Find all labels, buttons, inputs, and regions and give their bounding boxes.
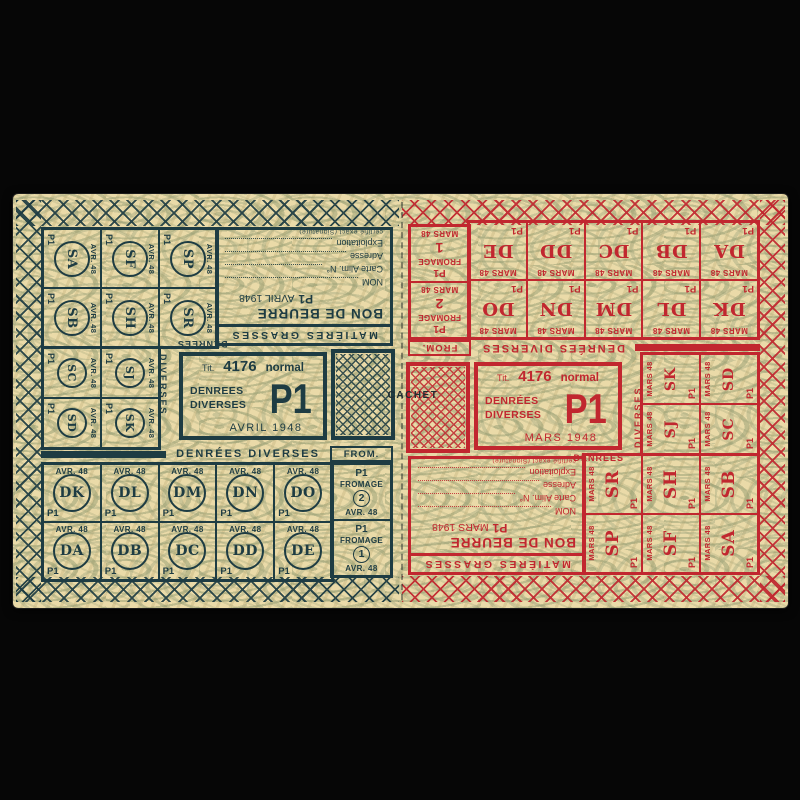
p1-label: P1 (687, 438, 697, 449)
tit-label: Tit. (202, 363, 214, 373)
titre-number: 4176 (223, 358, 256, 375)
p1-label: P1 (685, 283, 697, 294)
coupon-cell: MARS 48DCP1 (585, 222, 643, 280)
fromage-header: FROM. (330, 446, 393, 462)
big-p1: P1 (564, 391, 606, 427)
grid-header-text: DENRÉES DIVERSES (471, 342, 635, 354)
stamp-cell: AVR. 48SBP1 (43, 288, 101, 347)
month-label: MARS 48 (528, 268, 584, 277)
fromage-word: FROMAGE (340, 480, 383, 489)
fromage-cell: P1FROMAGE1MARS 48 (410, 226, 469, 282)
coupon-letters: DN (232, 485, 258, 501)
ration-sheet: AVR. 48SAP1 AVR. 48SFP1 AVR. 48SPP1 AVR.… (13, 194, 788, 608)
month-label: MARS 48 (470, 268, 526, 277)
coupon-letters: SA (65, 248, 80, 268)
p1-label: P1 (278, 508, 290, 519)
p1-label: P1 (46, 234, 56, 245)
p1-label: P1 (511, 225, 523, 236)
p1-label: P1 (355, 524, 367, 535)
coupon-cell: MARS 48DBP1 (642, 222, 700, 280)
stamp-circle: DE (284, 532, 322, 570)
form-field-nom: NOM (225, 277, 383, 290)
p1-label: P1 (742, 283, 754, 294)
p1-label: P1 (745, 498, 755, 509)
fromage-header: FROM. (408, 340, 471, 356)
p1-label: P1 (46, 403, 56, 414)
stamp-circle: DE (479, 232, 517, 270)
title-block-date: MARS 1948 (485, 432, 611, 444)
p1-label: P1 (162, 234, 172, 245)
p1-label: P1 (162, 293, 172, 304)
month-label: MARS 48 (701, 268, 757, 277)
coupon-letters: DA (713, 241, 745, 262)
coupon-cell: AVR. 48DLP1 (101, 464, 159, 522)
stamp-circle: DA (710, 232, 748, 270)
fromage-column: P1FROMAGE2MARS 48 P1FROMAGE1MARS 48 (408, 224, 471, 340)
month-label: AVR. 48 (89, 291, 98, 345)
coupon-letters: DN (539, 299, 573, 320)
coupon-cell: AVR. 48DKP1 (43, 464, 101, 522)
p1-label: P1 (104, 353, 114, 364)
coupon-letters: SJ (124, 366, 137, 380)
p1-label: P1 (46, 353, 56, 364)
stamp-circle: DA (53, 532, 91, 570)
coupon-letters: SH (123, 306, 138, 329)
stamp-circle: SA (711, 526, 747, 562)
coupon-cell: AVR. 48DOP1 (274, 464, 332, 522)
month-label: MARS 48 (421, 286, 458, 295)
stamp-cell: MARS 48SAP1 (700, 514, 758, 573)
coupon-letters: DE (291, 543, 315, 559)
grid-header-bar: DENRÉES DIVERSES (41, 446, 330, 462)
p1-label: P1 (104, 403, 114, 414)
normal-label: normal (266, 362, 304, 374)
coupon-cell: AVR. 48DAP1 (43, 522, 101, 580)
stamp-circle: DB (111, 532, 149, 570)
coupon-letters: DA (60, 543, 84, 559)
diverses-label: DIVERSES (633, 386, 643, 448)
stamp-circle: DO (479, 290, 517, 328)
butter-voucher-panel: MATIÈRES GRASSES BON DE BEURRE P1AVRIL 1… (215, 227, 393, 346)
coupon-letters: SJ (663, 420, 679, 439)
dotted-line (225, 264, 322, 274)
p1-label: P1 (627, 283, 639, 294)
form-field-adresse: Adresse (225, 251, 383, 264)
p1-label: P1 (105, 508, 117, 519)
stamp-cell: AVR. 48SPP1 (159, 229, 217, 288)
p1-label: P1 (105, 566, 117, 577)
coupon-letters: SA (719, 530, 739, 557)
fromage-number: 1 (431, 240, 448, 257)
fromage-cell: P1FROMAGE2AVR. 48 (332, 464, 391, 520)
stamp-circle: SH (112, 300, 148, 336)
coupon-cell: MARS 48DEP1 (469, 222, 527, 280)
month-label: MARS 48 (587, 517, 596, 571)
month-label: MARS 48 (586, 326, 642, 335)
dotted-line (418, 506, 551, 516)
month-label: AVR. 48 (160, 467, 216, 476)
stamp-cell: AVR. 48SJP1 (101, 348, 159, 398)
coupon-cell: AVR. 48DEP1 (274, 522, 332, 580)
voucher-date: P1AVRIL 1948 (239, 292, 383, 306)
coupon-letters: DK (59, 485, 84, 501)
form-field-exploitation: Exploitation (418, 467, 576, 480)
coupon-cell: AVR. 48DMP1 (159, 464, 217, 522)
stamp-circle: DK (53, 474, 91, 512)
form-field-carte: Carte Alim. N° (418, 493, 576, 506)
fromage-number: 2 (353, 490, 370, 507)
fromage-column: P1FROMAGE2AVR. 48 P1FROMAGE1AVR. 48 (330, 462, 393, 578)
stamp-circle: SB (711, 467, 747, 503)
month-label: MARS 48 (645, 357, 654, 401)
p1-label: P1 (220, 508, 232, 519)
stamp-cell: MARS 48SJP1 (642, 404, 700, 454)
stamp-circle: DC (595, 232, 633, 270)
dotted-line (225, 251, 346, 261)
big-p1: P1 (269, 381, 311, 417)
p1-label: P1 (742, 225, 754, 236)
stamp-cell: MARS 48SDP1 (700, 354, 758, 404)
butter-voucher-panel: MATIÈRES GRASSES BON DE BEURRE P1MARS 19… (408, 456, 586, 575)
p1-label: P1 (687, 557, 697, 568)
month-label: AVR. 48 (89, 351, 98, 395)
coupon-cell: MARS 48DNP1 (527, 280, 585, 338)
form-field-nom: NOM (418, 506, 576, 519)
p1-label: P1 (278, 566, 290, 577)
bon-de-beurre-title: BON DE BEURRE (418, 535, 576, 550)
month-label: MARS 48 (586, 268, 642, 277)
coupon-letters: SD (66, 414, 79, 432)
coupon-letters: DE (482, 241, 513, 262)
month-label: AVR. 48 (205, 291, 214, 345)
dotted-line (225, 277, 358, 287)
stamp-cell: MARS 48SFP1 (642, 514, 700, 573)
month-label: MARS 48 (703, 458, 712, 512)
stamp-circle: SR (595, 467, 631, 503)
coupon-letters: SR (603, 470, 623, 498)
stamp-circle: SP (595, 526, 631, 562)
month-label: AVR. 48 (275, 525, 331, 534)
month-label: AVR. 48 (89, 401, 98, 445)
grid-header-bar: DENRÉES DIVERSES (471, 340, 760, 356)
normal-label: normal (561, 372, 599, 384)
category-label: DENRÉESDIVERSES (485, 395, 541, 422)
p1-label: P1 (220, 566, 232, 577)
month-label: MARS 48 (470, 326, 526, 335)
coupon-letters: SD (721, 367, 737, 391)
month-label: AVR. 48 (102, 467, 158, 476)
month-label: AVR. 48 (345, 508, 377, 517)
stamp-cell: AVR. 48SFP1 (101, 229, 159, 288)
p1-label: P1 (298, 292, 313, 306)
fromage-word: FROMAGE (340, 536, 383, 545)
month-label: AVR. 48 (147, 291, 156, 345)
coupon-letters: DL (118, 485, 141, 501)
month-label: AVR. 48 (205, 232, 214, 286)
stamp-circle: SJ (656, 414, 686, 444)
coupon-cell: AVR. 48DCP1 (159, 522, 217, 580)
month-label: MARS 48 (528, 326, 584, 335)
coupon-cell: MARS 48DDP1 (527, 222, 585, 280)
month-label: MARS 48 (645, 407, 654, 451)
cachet-crosshatch (411, 367, 465, 448)
stamp-block-lower: AVR. 48SCP1 AVR. 48SJP1 AVR. 48SDP1 AVR.… (41, 346, 161, 450)
stamp-circle: SK (115, 408, 145, 438)
stamp-circle: SC (57, 358, 87, 388)
form-field-exploitation: Exploitation (225, 238, 383, 251)
stamp-circle: DM (595, 290, 633, 328)
coupon-letters: DO (290, 485, 315, 501)
fromage-word: FROMAGE (418, 314, 461, 323)
month-label: AVR. 48 (102, 525, 158, 534)
month-label: AVR. 48 (147, 351, 156, 395)
diverses-label: DIVERSES (158, 354, 168, 416)
fromage-word: FROMAGE (418, 258, 461, 267)
coupon-cell: MARS 48DKP1 (700, 280, 758, 338)
stamp-circle: DD (537, 232, 575, 270)
p1-label: P1 (163, 508, 175, 519)
stamp-cell: AVR. 48SAP1 (43, 229, 101, 288)
p1-label: P1 (745, 438, 755, 449)
month-label: MARS 48 (587, 458, 596, 512)
fromage-number: 1 (353, 546, 370, 563)
month-label: AVR. 48 (147, 232, 156, 286)
month-label: AVR. 48 (217, 525, 273, 534)
fold-perforation-line (401, 202, 403, 600)
coupon-cell: AVR. 48DNP1 (216, 464, 274, 522)
coupon-cell: MARS 48DOP1 (469, 280, 527, 338)
crosshatch-border-right (760, 200, 785, 602)
stamp-circle: DM (168, 474, 206, 512)
fromage-number: 2 (431, 296, 448, 313)
voucher-date: P1MARS 1948 (432, 521, 576, 535)
month-label: MARS 48 (421, 230, 458, 239)
coupon-cell: AVR. 48DDP1 (216, 522, 274, 580)
coupon-letters: DB (117, 543, 142, 559)
form-field-carte: Carte Alim. N° (225, 264, 383, 277)
month-label: AVR. 48 (217, 467, 273, 476)
cachet-box (406, 362, 470, 453)
coupon-letters: SC (66, 364, 79, 382)
p1-label: P1 (511, 283, 523, 294)
signature-note: certifié exact (Signature) (418, 457, 576, 464)
stamp-block-upper: MARS 48SAP1 MARS 48SFP1 MARS 48SPP1 MARS… (582, 453, 760, 575)
month-label: MARS 48 (645, 458, 654, 512)
month-label: MARS 48 (703, 517, 712, 571)
coupon-letters: SF (123, 249, 138, 269)
matieres-grasses-header: MATIÈRES GRASSES (218, 324, 390, 343)
stamp-circle: SD (57, 408, 87, 438)
fromage-cell: P1FROMAGE2MARS 48 (410, 282, 469, 338)
stamp-block-lower: MARS 48SCP1 MARS 48SJP1 MARS 48SDP1 MARS… (640, 352, 760, 456)
coupon-letters: DK (712, 299, 745, 320)
coupon-letters: DB (655, 241, 688, 262)
coupon-half-avril: AVR. 48SAP1 AVR. 48SFP1 AVR. 48SPP1 AVR.… (13, 194, 402, 608)
month-label: MARS 48 (703, 357, 712, 401)
crosshatch-border-left (16, 200, 41, 602)
grid-header-text: DENRÉES DIVERSES (166, 448, 330, 460)
title-block-date: AVRIL 1948 (190, 422, 316, 434)
stamp-cell: AVR. 48SHP1 (101, 288, 159, 347)
month-label: MARS 48 (645, 517, 654, 571)
month-label: MARS 48 (703, 407, 712, 451)
stamp-circle: DC (168, 532, 206, 570)
p1-label: P1 (687, 498, 697, 509)
matieres-grasses-header: MATIÈRES GRASSES (411, 553, 583, 572)
solid-bar (41, 451, 166, 458)
p1-label: P1 (687, 388, 697, 399)
p1-label: P1 (629, 557, 639, 568)
stamp-cell: MARS 48SBP1 (700, 455, 758, 514)
stamp-circle: SB (54, 300, 90, 336)
dotted-line (225, 238, 332, 248)
month-label: AVR. 48 (44, 467, 100, 476)
coupon-letters: DL (656, 299, 686, 320)
stamp-circle: SF (653, 526, 689, 562)
scan-background: AVR. 48SAP1 AVR. 48SFP1 AVR. 48SPP1 AVR.… (0, 0, 800, 800)
coupon-letters: SP (181, 248, 196, 268)
stamp-circle: SK (656, 364, 686, 394)
stamp-cell: MARS 48SPP1 (584, 514, 642, 573)
titre-number: 4176 (518, 368, 551, 385)
coupon-cell: MARS 48DLP1 (642, 280, 700, 338)
stamp-circle: SH (653, 467, 689, 503)
title-block: Tit.4176normal DENRÉESDIVERSESP1 MARS 19… (474, 362, 622, 450)
p1-label: P1 (569, 283, 581, 294)
p1-label: P1 (493, 521, 508, 535)
coupon-grid: AVR. 48DKP1 AVR. 48DLP1 AVR. 48DMP1 AVR.… (41, 462, 334, 582)
fromage-cell: P1FROMAGE1AVR. 48 (332, 520, 391, 576)
coupon-letters: SK (124, 414, 137, 433)
p1-label: P1 (433, 324, 445, 335)
p1-label: P1 (47, 566, 59, 577)
stamp-circle: DL (652, 290, 690, 328)
stamp-cell: AVR. 48SCP1 (43, 348, 101, 398)
form-field-adresse: Adresse (418, 480, 576, 493)
p1-label: P1 (47, 508, 59, 519)
coupon-letters: SH (661, 469, 681, 499)
coupon-letters: DM (595, 299, 633, 320)
month-label: AVR. 48 (160, 525, 216, 534)
month-label: AVR. 48 (89, 232, 98, 286)
coupon-letters: DO (481, 299, 514, 320)
coupon-grid: MARS 48DKP1 MARS 48DLP1 MARS 48DMP1 MARS… (467, 220, 760, 340)
p1-label: P1 (46, 293, 56, 304)
coupon-letters: DD (233, 543, 258, 559)
month-label: MARS 48 (701, 326, 757, 335)
stamp-cell: AVR. 48SKP1 (101, 398, 159, 448)
category-label: DENREESDIVERSES (190, 385, 246, 412)
stamp-circle: SR (170, 300, 206, 336)
p1-label: P1 (569, 225, 581, 236)
p1-label: P1 (163, 566, 175, 577)
stamp-cell: MARS 48SKP1 (642, 354, 700, 404)
coupon-cell: MARS 48DMP1 (585, 280, 643, 338)
coupon-half-mars: MARS 48SAP1 MARS 48SFP1 MARS 48SPP1 MARS… (399, 194, 788, 608)
solid-bar (635, 345, 760, 352)
stamp-circle: DN (537, 290, 575, 328)
p1-label: P1 (355, 468, 367, 479)
coupon-letters: DC (175, 543, 199, 559)
stamp-block-upper: AVR. 48SAP1 AVR. 48SFP1 AVR. 48SPP1 AVR.… (41, 227, 219, 349)
stamp-circle: SF (112, 241, 148, 277)
p1-label: P1 (629, 498, 639, 509)
stamp-circle: SC (714, 414, 744, 444)
coupon-letters: DC (598, 241, 630, 262)
crosshatch-border-bottom (402, 576, 785, 602)
p1-label: P1 (104, 234, 114, 245)
stamp-circle: DB (652, 232, 690, 270)
dotted-line (418, 493, 515, 503)
p1-label: P1 (745, 388, 755, 399)
stamp-cell: AVR. 48SDP1 (43, 398, 101, 448)
month-label: MARS 48 (643, 326, 699, 335)
coupon-letters: SB (719, 470, 739, 499)
stamp-cell: MARS 48SCP1 (700, 404, 758, 454)
stamp-circle: DD (226, 532, 264, 570)
month-label: AVR. 48 (147, 401, 156, 445)
coupon-letters: SC (721, 417, 737, 440)
stamp-circle: SD (714, 364, 744, 394)
p1-label: P1 (627, 225, 639, 236)
p1-label: P1 (104, 293, 114, 304)
stamp-circle: SJ (115, 358, 145, 388)
month-label: AVR. 48 (44, 525, 100, 534)
title-block: Tit.4176normal DENREESDIVERSESP1 AVRIL 1… (179, 352, 327, 440)
signature-note: certifié exact (Signature) (225, 228, 383, 235)
coupon-letters: SR (181, 307, 196, 328)
bon-de-beurre-title: BON DE BEURRE (225, 306, 383, 321)
dotted-line (418, 480, 539, 490)
stamp-circle: DL (111, 474, 149, 512)
crosshatch-border-top (16, 200, 399, 226)
dotted-line (418, 467, 525, 477)
stamp-circle: SP (170, 241, 206, 277)
month-label: AVR. 48 (345, 564, 377, 573)
coupon-cell: AVR. 48DBP1 (101, 522, 159, 580)
coupon-letters: SB (65, 307, 80, 328)
stamp-circle: DK (710, 290, 748, 328)
month-label: MARS 48 (643, 268, 699, 277)
stamp-circle: DO (284, 474, 322, 512)
coupon-letters: SF (661, 530, 681, 556)
tit-label: Tit. (497, 373, 509, 383)
coupon-letters: SP (603, 530, 623, 557)
p1-label: P1 (745, 557, 755, 568)
coupon-cell: MARS 48DAP1 (700, 222, 758, 280)
stamp-circle: DN (226, 474, 264, 512)
stamp-circle: SA (54, 241, 90, 277)
month-label: AVR. 48 (275, 467, 331, 476)
stamp-cell: MARS 48SRP1 (584, 455, 642, 514)
cachet-label: CACHET (373, 390, 453, 401)
coupon-letters: SK (663, 367, 679, 391)
coupon-letters: DD (539, 241, 572, 262)
coupon-letters: DM (173, 485, 202, 501)
p1-label: P1 (433, 268, 445, 279)
p1-label: P1 (685, 225, 697, 236)
stamp-cell: MARS 48SHP1 (642, 455, 700, 514)
